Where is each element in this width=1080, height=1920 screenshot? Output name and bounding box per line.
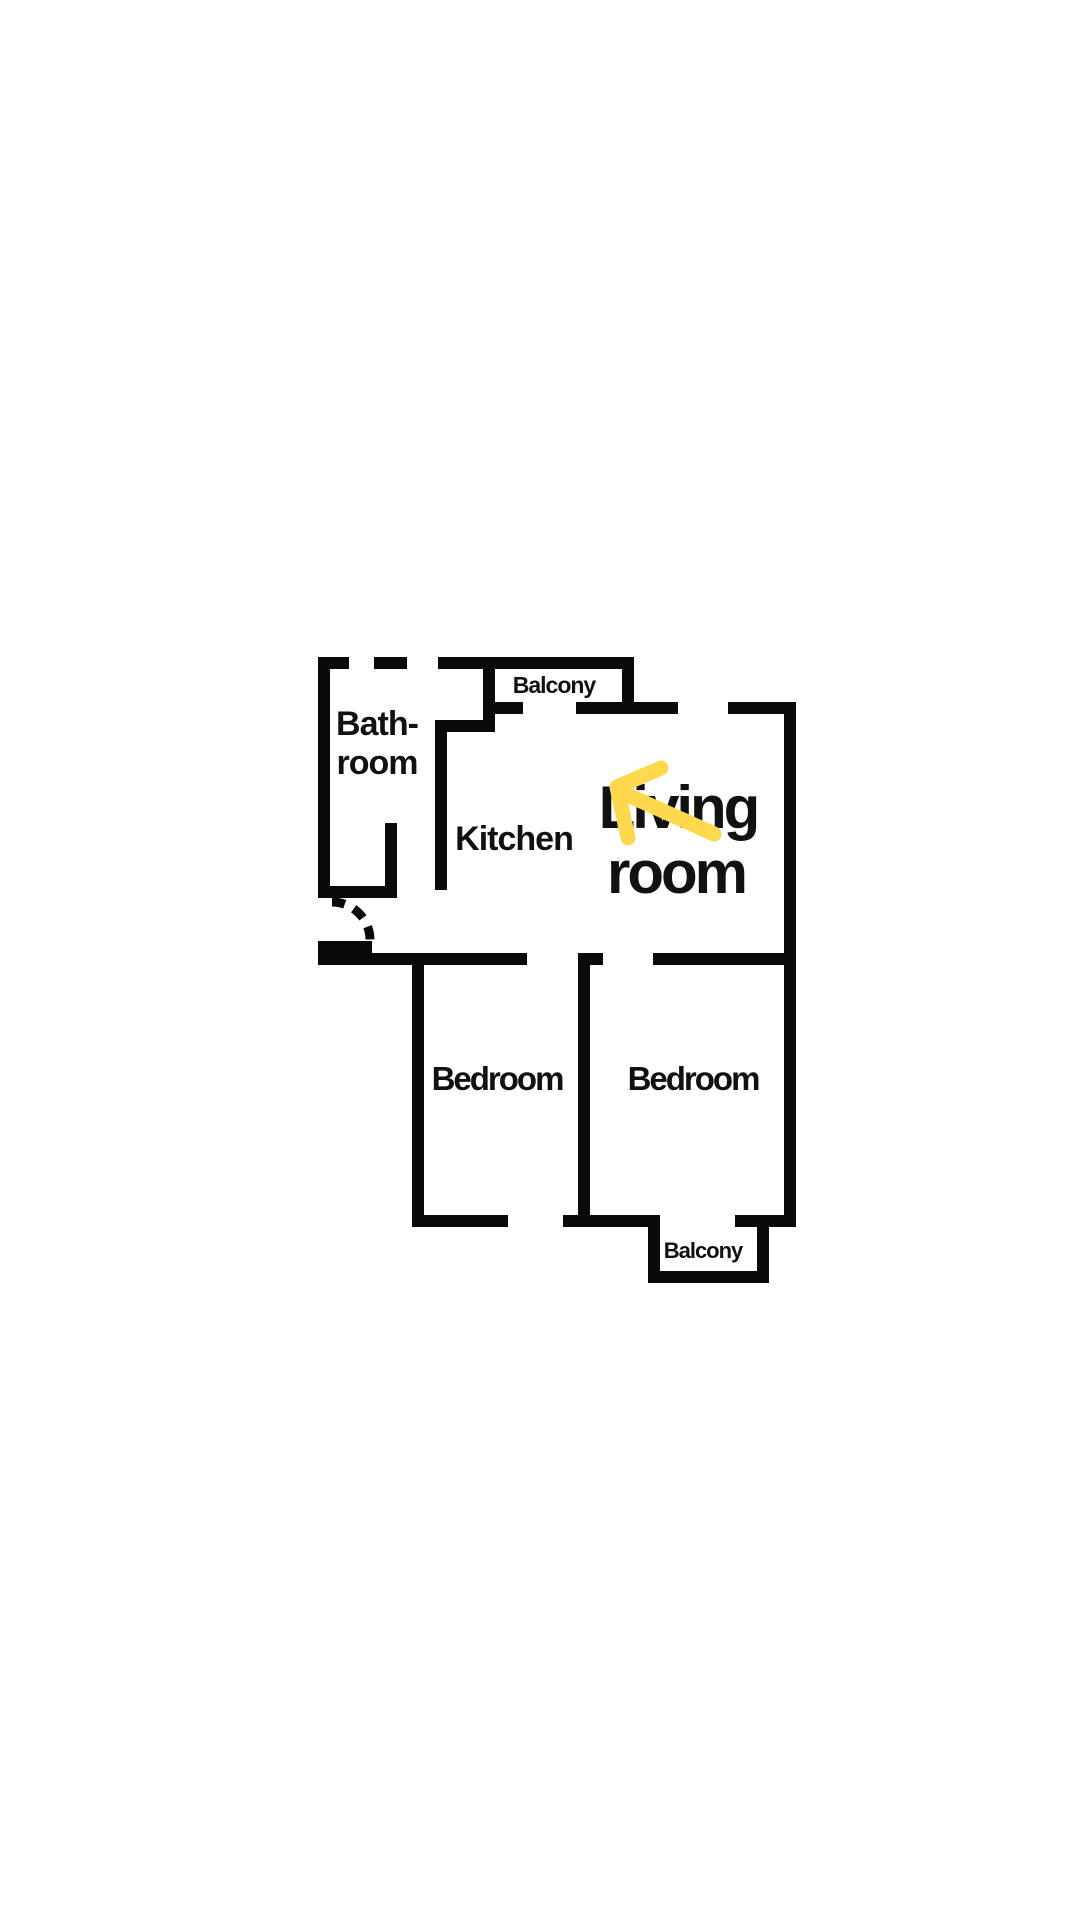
room-label-balcony-top: Balcony — [513, 672, 597, 698]
wall-segment — [648, 1271, 769, 1283]
wall-segment — [438, 657, 634, 669]
floor-plan-page: Bath-roomBalconyKitchenLivingroomBedroom… — [0, 0, 1080, 1920]
wall-segment — [435, 720, 447, 890]
wall-segment — [653, 953, 796, 965]
wall-segment — [412, 965, 424, 1227]
wall-segment — [318, 953, 527, 965]
room-label-bedroom-left: Bedroom — [432, 1060, 564, 1097]
floor-plan-drawing: Bath-roomBalconyKitchenLivingroomBedroom… — [0, 0, 1080, 1920]
room-label-balcony-bottom: Balcony — [664, 1238, 744, 1263]
wall-segment — [622, 657, 634, 714]
room-label-kitchen: Kitchen — [455, 820, 573, 858]
wall-segment — [563, 1215, 660, 1227]
wall-segment — [483, 657, 495, 732]
room-label-bathroom-line-2: room — [337, 744, 418, 782]
room-labels: Bath-roomBalconyKitchenLivingroomBedroom… — [336, 672, 759, 1263]
wall-segment — [784, 702, 796, 1227]
wall-segment — [318, 941, 330, 965]
wall-segment — [578, 965, 590, 1227]
door-swing-arc — [332, 902, 370, 940]
wall-segment — [495, 702, 523, 714]
entrance-door-swing — [332, 902, 370, 940]
wall-segment — [374, 657, 407, 669]
room-label-bathroom-line-1: Bath- — [336, 705, 418, 743]
wall-segment — [648, 1227, 660, 1283]
wall-segment — [757, 1227, 769, 1283]
wall-segment — [578, 953, 603, 965]
room-label-bedroom-right: Bedroom — [628, 1060, 760, 1097]
room-label-living-room-line-2: room — [607, 839, 745, 906]
wall-segment — [318, 657, 330, 898]
wall-segment — [412, 1215, 508, 1227]
wall-segment — [385, 823, 397, 898]
